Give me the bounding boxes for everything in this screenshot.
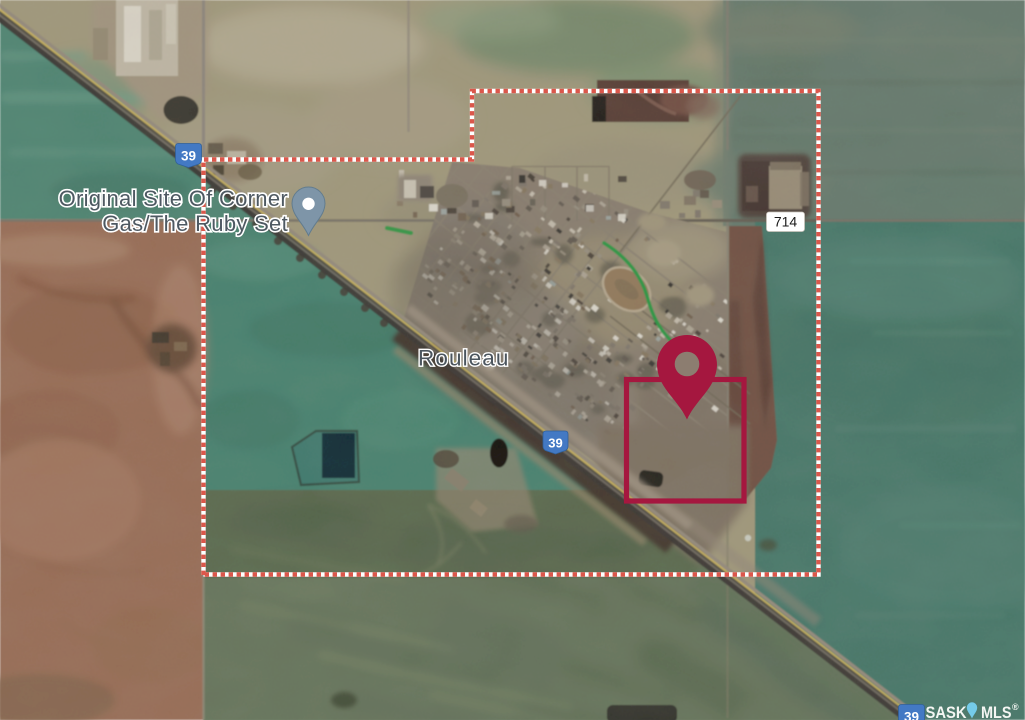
svg-text:MLS: MLS	[981, 704, 1012, 720]
svg-text:39: 39	[904, 710, 919, 720]
svg-text:39: 39	[548, 435, 562, 450]
svg-text:Rouleau: Rouleau	[418, 346, 510, 371]
svg-text:39: 39	[181, 149, 196, 164]
svg-text:Gas/The Ruby Set: Gas/The Ruby Set	[102, 211, 288, 236]
svg-text:714: 714	[774, 214, 798, 230]
svg-text:Original Site Of Corner: Original Site Of Corner	[59, 186, 288, 211]
svg-text:®: ®	[1012, 702, 1019, 712]
svg-text:SASK: SASK	[926, 704, 967, 720]
